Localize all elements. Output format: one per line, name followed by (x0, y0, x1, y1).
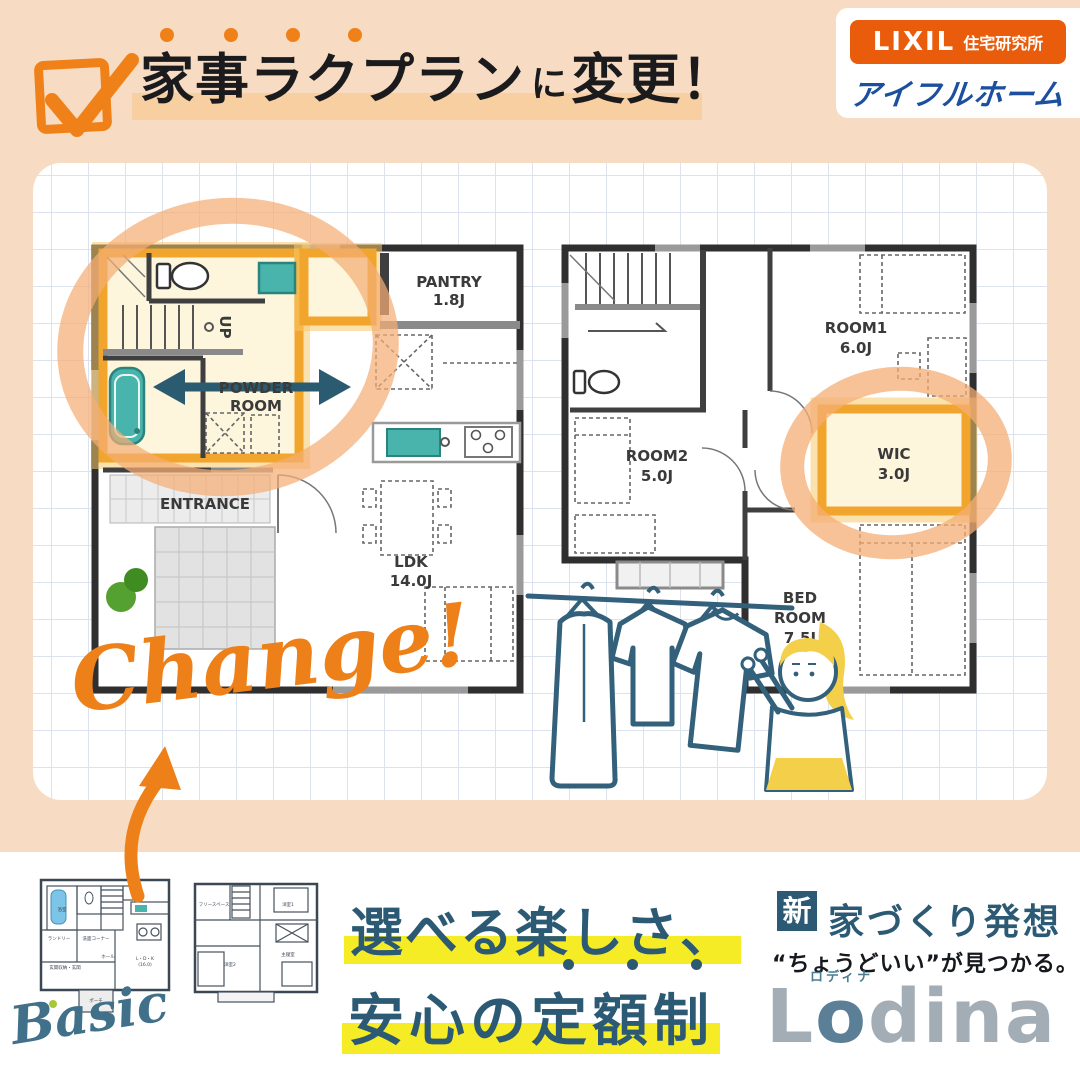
hand (742, 658, 754, 670)
powder-room-label: POWDER (219, 379, 294, 397)
mini-label-main: 主寝室 (281, 951, 295, 958)
mini-label-counter: 洗面コーナー (83, 935, 110, 942)
poster-root: { "header": { "title_main": "家事ラクプラン", "… (0, 0, 1080, 1080)
mini-label-ldk-size: (16.0) (138, 962, 152, 968)
room1-size: 6.0J (840, 339, 872, 357)
mini-label-storage: 玄関収納・玄関 (49, 964, 81, 971)
room2-size: 5.0J (641, 467, 673, 485)
pantry-size: 1.8J (433, 291, 465, 309)
eyefulhome-logo: アイフルホーム (834, 70, 1080, 114)
kitchen-sink-icon (387, 429, 440, 456)
mini-label-laundry: ランドリー (48, 936, 71, 942)
mini-bathtub (51, 890, 66, 924)
mini-label-room1: 洋室1 (282, 901, 294, 908)
mini-label-ldk: L・D・K (136, 956, 155, 962)
room2-label: ROOM2 (626, 447, 688, 465)
mini-sink (135, 905, 147, 912)
kitchen-counter (373, 423, 520, 462)
slogan-dot (563, 959, 574, 970)
concept-text: 家づくり発想 (828, 893, 1062, 945)
slogan-dot (627, 959, 638, 970)
new-badge: 新 (777, 891, 817, 931)
wic-label: WIC (877, 445, 910, 463)
mini-label-bath: 浴室 (58, 906, 67, 913)
title-dot (160, 28, 174, 42)
mini-label-room2: 洋室2 (224, 961, 236, 968)
highlight-wic: WIC 3.0J (818, 405, 970, 515)
title-tail: 変更！ (571, 50, 736, 109)
title-particle: に (525, 55, 571, 109)
powder-room-label2: ROOM (230, 397, 282, 415)
mini-label-hall: ホール (101, 954, 115, 960)
stove-icon (465, 427, 512, 457)
mini-label-free: フリースペース (199, 902, 230, 908)
pantry-label: PANTRY (416, 273, 483, 291)
slogan-dot (691, 959, 702, 970)
stairs-label: UP (216, 315, 234, 338)
title-dot (224, 28, 238, 42)
entrance-label: ENTRANCE (160, 495, 250, 513)
ldk-label: LDK (394, 553, 429, 571)
page-title: 家事ラクプランに変更！ (140, 50, 736, 109)
title-main: 家事ラクプラン (140, 50, 525, 109)
lixil-wordmark: LIXIL (873, 27, 956, 57)
company-logo-box: LIXIL 住宅研究所 アイフルホーム (836, 8, 1080, 118)
title-dot (286, 28, 300, 42)
title-dot (348, 28, 362, 42)
mini-balcony (218, 992, 274, 1002)
toilet-icon (157, 263, 208, 289)
laundry-sink-icon (259, 263, 295, 293)
lixil-logo: LIXIL 住宅研究所 (850, 20, 1066, 64)
lodina-logo: Lodina (766, 980, 1057, 1054)
checkbox-icon (28, 40, 148, 142)
hand (755, 649, 767, 661)
toilet-icon (589, 371, 619, 393)
change-arrow (105, 738, 215, 898)
laundry-illustration (520, 562, 890, 812)
coat (552, 614, 615, 786)
wic-size: 3.0J (878, 465, 910, 483)
apron (766, 758, 852, 790)
slogan-line2: 安心の定額制 (348, 976, 714, 1057)
ldk-size: 14.0J (390, 572, 433, 590)
clothesline (528, 596, 792, 608)
slogan-line1: 選べる楽しさ、 (350, 891, 735, 967)
lixil-subtitle: 住宅研究所 (963, 30, 1043, 54)
room1-label: ROOM1 (825, 319, 887, 337)
